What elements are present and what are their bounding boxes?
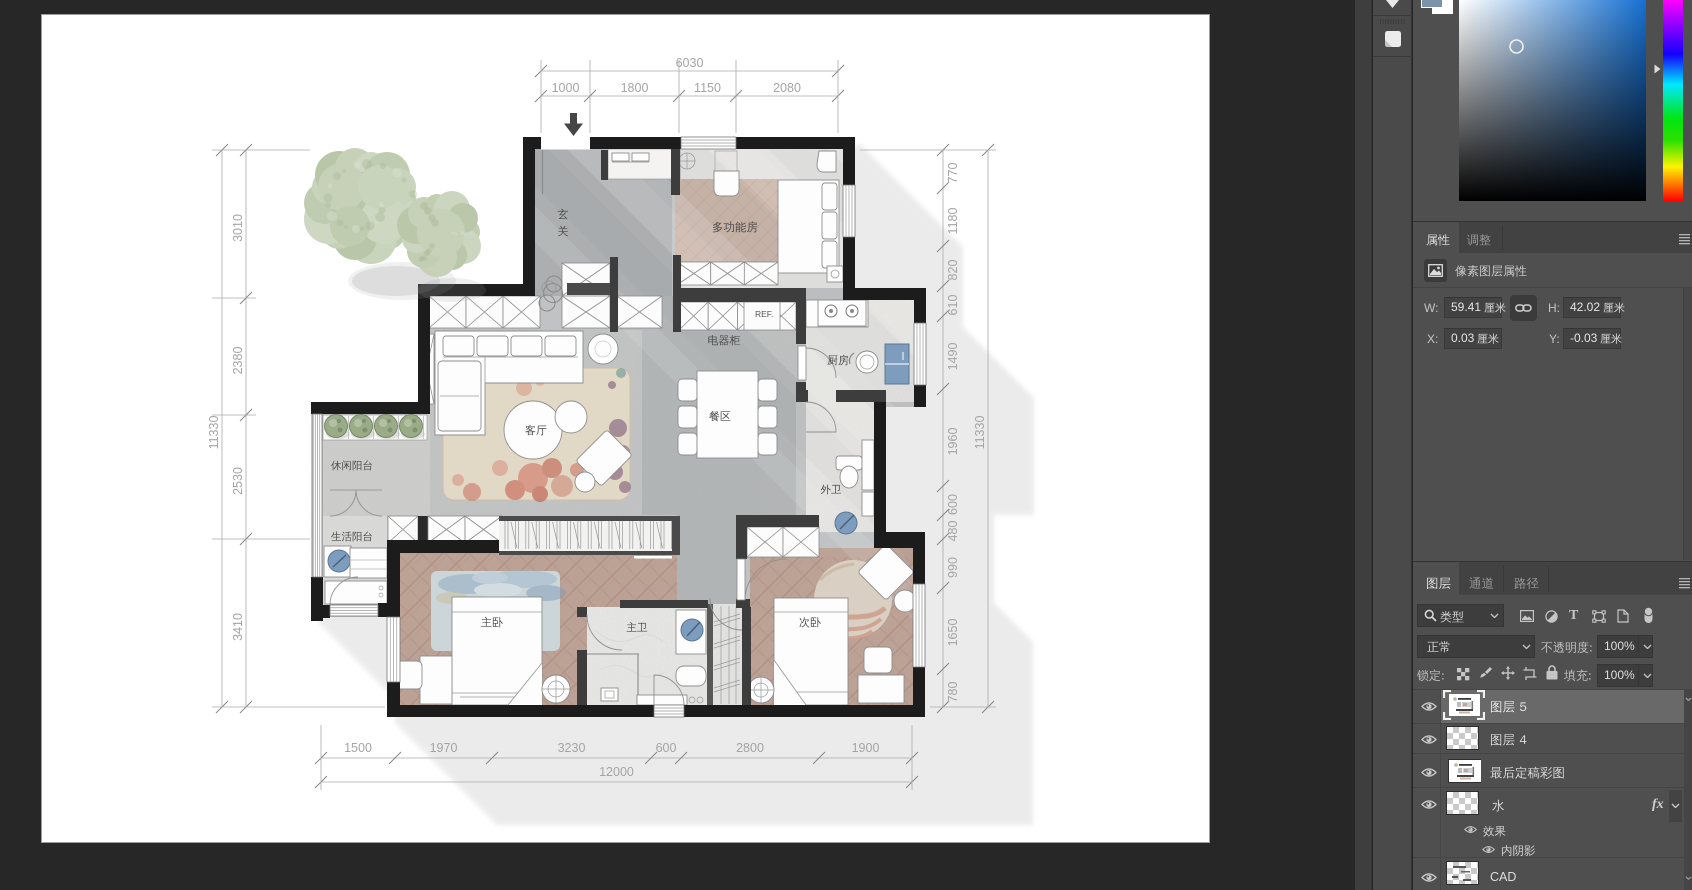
svg-text:1150: 1150: [694, 81, 721, 95]
svg-text:12000: 12000: [599, 765, 634, 779]
svg-text:1800: 1800: [621, 81, 649, 95]
svg-text:610: 610: [946, 295, 960, 316]
svg-text:2800: 2800: [736, 741, 764, 755]
svg-text:820: 820: [946, 260, 960, 281]
svg-text:2380: 2380: [231, 347, 245, 375]
svg-text:1000: 1000: [552, 81, 580, 95]
svg-text:480: 480: [946, 521, 960, 542]
svg-text:1960: 1960: [946, 428, 960, 456]
svg-text:600: 600: [946, 494, 960, 515]
svg-text:1650: 1650: [946, 619, 960, 647]
svg-text:1490: 1490: [946, 343, 960, 371]
svg-text:1970: 1970: [430, 741, 458, 755]
svg-text:770: 770: [946, 163, 960, 184]
svg-text:990: 990: [946, 557, 960, 578]
svg-text:3410: 3410: [231, 613, 245, 641]
svg-text:11330: 11330: [207, 416, 221, 450]
svg-text:3010: 3010: [231, 214, 245, 242]
svg-text:1180: 1180: [946, 208, 960, 235]
svg-text:1500: 1500: [344, 741, 372, 755]
svg-text:1900: 1900: [852, 741, 880, 755]
svg-text:780: 780: [946, 682, 960, 703]
svg-text:2080: 2080: [773, 81, 801, 95]
svg-text:11330: 11330: [973, 416, 987, 450]
svg-text:3230: 3230: [558, 741, 586, 755]
svg-text:600: 600: [656, 741, 677, 755]
svg-text:2530: 2530: [231, 467, 245, 495]
svg-text:6030: 6030: [676, 56, 704, 70]
